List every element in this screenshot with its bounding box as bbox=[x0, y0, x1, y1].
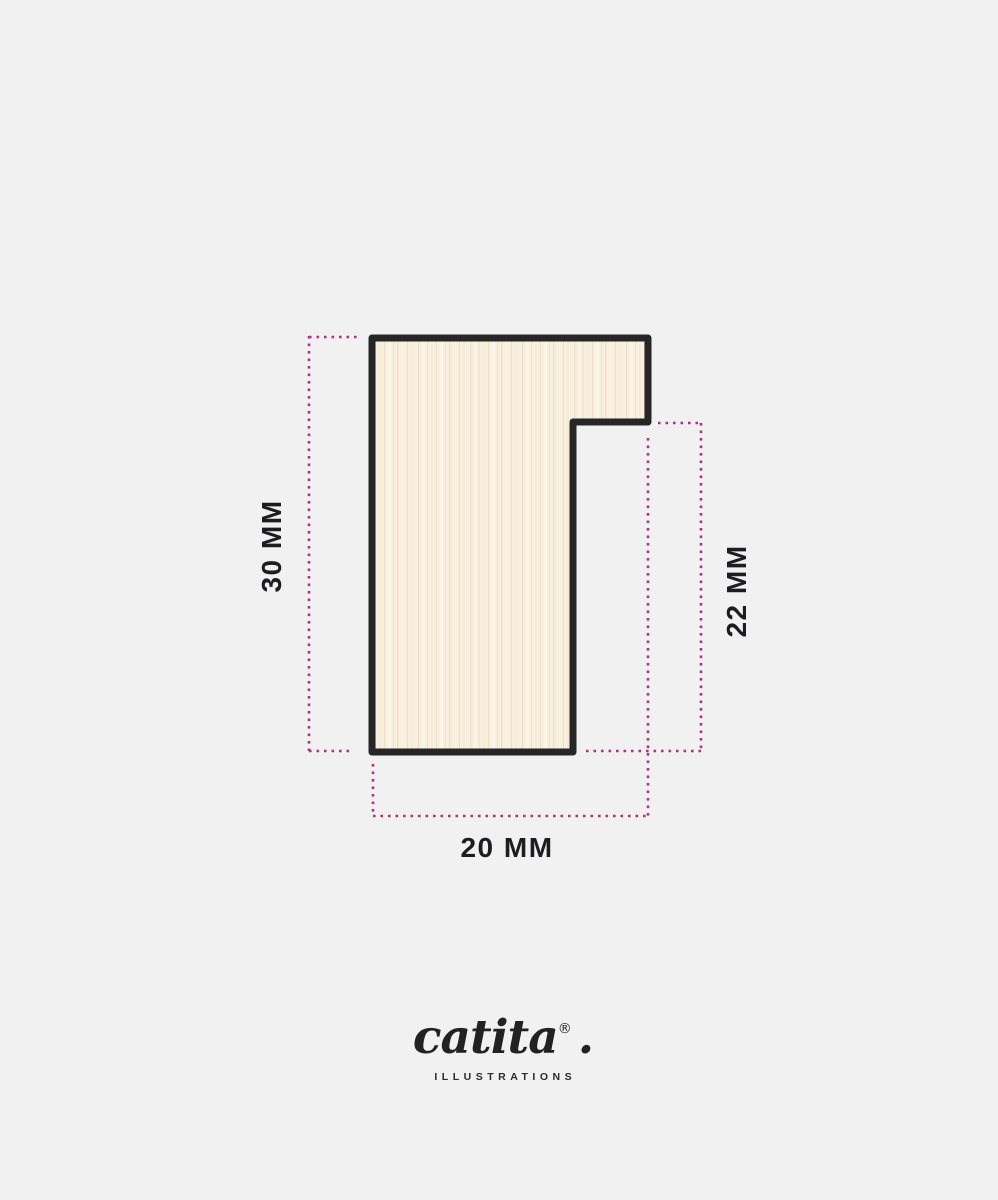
illustration-canvas: 30 MM 22 MM 20 MM catita®. ILLUSTRATIONS bbox=[0, 0, 998, 1200]
brand-name: catita bbox=[413, 1010, 558, 1065]
brand-logo: catita®. ILLUSTRATIONS bbox=[413, 1012, 593, 1083]
dimension-label-30mm: 30 MM bbox=[256, 499, 288, 592]
dimension-label-20mm: 20 MM bbox=[460, 832, 553, 864]
brand-wordmark-period: . bbox=[578, 1012, 593, 1064]
dimension-line-22mm bbox=[586, 423, 701, 751]
registered-trademark-icon: ® bbox=[558, 1022, 572, 1037]
moulding-profile-shape bbox=[372, 338, 648, 752]
dimension-line-30mm bbox=[309, 336, 358, 751]
brand-wordmark: catita®. bbox=[413, 1012, 593, 1064]
dimension-label-22mm: 22 MM bbox=[721, 544, 753, 637]
brand-tagline: ILLUSTRATIONS bbox=[413, 1071, 593, 1083]
